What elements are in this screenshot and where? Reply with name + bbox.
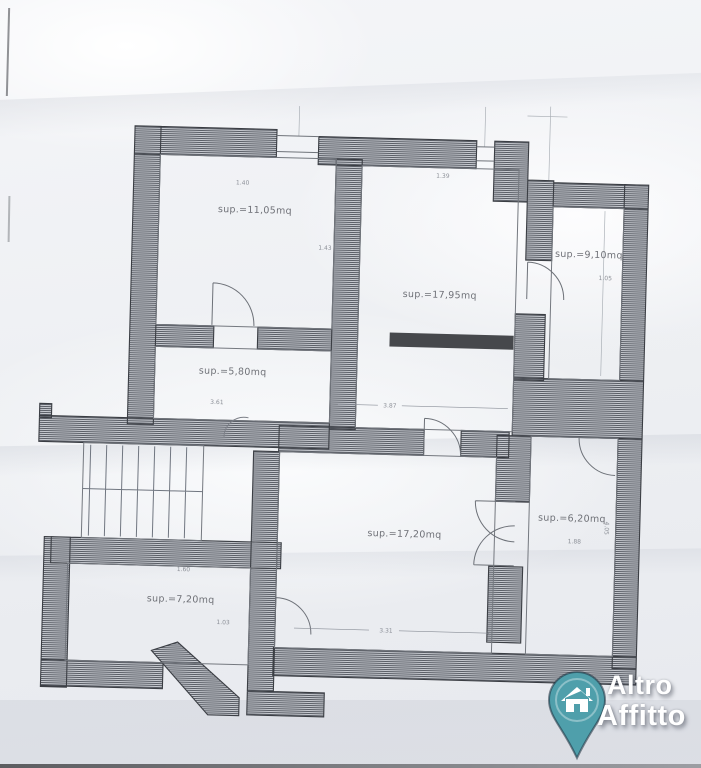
solid-wall-bar <box>389 332 513 349</box>
dimension-label: 3.31 <box>379 627 393 634</box>
room-label: sup.=17,95mq <box>403 289 477 302</box>
logo-text-line2: Affitto <box>597 700 686 733</box>
room-label: sup.=5,80mq <box>199 366 267 379</box>
dimension-label: 1.40 <box>236 179 250 186</box>
floorplan-drawing: sup.=11,05mq sup.=17,95mq sup.=9,10mq su… <box>0 0 701 768</box>
dimension-label: 1.05 <box>598 275 612 282</box>
room-label: sup.=6,20mq <box>538 512 606 525</box>
dimension-label: 4.05 <box>603 521 610 535</box>
dimension-label: 1.43 <box>318 245 332 252</box>
room-label: sup.=17,20mq <box>367 528 441 541</box>
dimension-label: 1.60 <box>177 566 191 573</box>
wall-segments <box>32 123 650 726</box>
altroaffitto-logo: Altro Affitto <box>543 664 701 764</box>
dimension-label: 1.39 <box>436 173 450 180</box>
scanned-floorplan-page: sup.=11,05mq sup.=17,95mq sup.=9,10mq su… <box>0 0 701 768</box>
dimension-label: 1.88 <box>568 538 582 545</box>
logo-text-line1: Altro <box>607 670 673 701</box>
room-label: sup.=7,20mq <box>147 593 215 606</box>
staircase-steps <box>81 445 203 539</box>
dimension-label: 3.87 <box>383 402 397 409</box>
room-label: sup.=11,05mq <box>218 204 292 217</box>
dimension-label: 1.03 <box>216 619 230 626</box>
room-label: sup.=9,10mq <box>555 249 623 262</box>
dimension-label: 3.61 <box>210 399 224 406</box>
